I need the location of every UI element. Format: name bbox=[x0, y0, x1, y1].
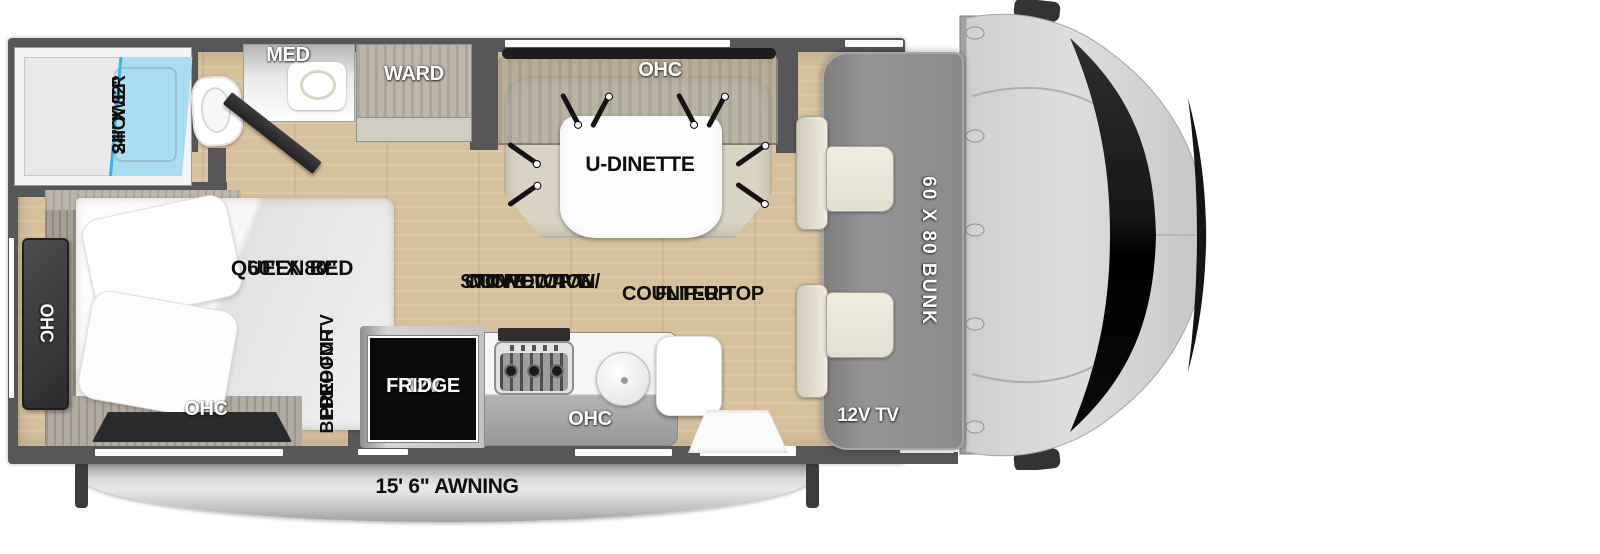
stove-backsplash bbox=[498, 328, 570, 341]
bed-name-text: QUEEN BED bbox=[231, 258, 353, 280]
bedroom-rear-ohc-label: OHC bbox=[168, 398, 244, 422]
window-top-dinette bbox=[505, 40, 730, 47]
window-bottom-middle bbox=[358, 449, 408, 455]
window-bottom-bedroom bbox=[95, 449, 283, 456]
cab-tv-label: 12V TV bbox=[824, 404, 912, 428]
driver-seat-back bbox=[796, 116, 828, 230]
wall-dinette-right bbox=[776, 38, 798, 153]
kitchen-sink bbox=[596, 352, 650, 406]
stove-burner bbox=[550, 364, 564, 378]
kitchen-ohc-label: OHC bbox=[558, 408, 622, 432]
stove-top bbox=[494, 341, 574, 395]
wall-cab-bottom bbox=[890, 452, 958, 464]
stove-label-line3: MICROWAVE bbox=[469, 272, 590, 293]
slide-topper-bar bbox=[502, 48, 776, 59]
joint-rivet bbox=[966, 421, 984, 433]
flip-up-counter-label: FLIP-UP COUNTER TOP bbox=[608, 272, 778, 318]
stove-knobs bbox=[510, 345, 562, 351]
fridge-label: 12V FRIDGE bbox=[368, 352, 478, 422]
stove-burner bbox=[504, 364, 518, 378]
dinette-ohc-label: OHC bbox=[630, 60, 690, 82]
passenger-seat-cushion bbox=[826, 292, 894, 358]
wardrobe-front bbox=[357, 117, 471, 141]
wall-wardrobe-right bbox=[470, 38, 498, 150]
stove-burner bbox=[527, 364, 541, 378]
joint-rivet bbox=[966, 130, 984, 142]
flip-label-line2: COUNTER TOP bbox=[622, 284, 764, 305]
passenger-seat-back bbox=[796, 284, 828, 398]
bedroom-tv-prep-label: PREP FOR BEDROOM TV bbox=[306, 294, 350, 454]
toilet-bowl bbox=[199, 86, 232, 134]
bathroom-sink bbox=[288, 62, 346, 110]
flip-up-counter bbox=[656, 336, 722, 416]
truck-cab bbox=[952, 0, 1212, 470]
awning-label: 15' 6" AWNING bbox=[78, 474, 816, 500]
window-bottom-kitchen bbox=[575, 449, 672, 456]
wardrobe-cabinet bbox=[356, 44, 472, 142]
shower-label-name: SHOWER bbox=[110, 75, 129, 154]
tv-prep-line2: BEDROOM TV bbox=[318, 315, 337, 434]
awning: 15' 6" AWNING bbox=[78, 462, 816, 522]
sink-drain bbox=[621, 377, 628, 384]
rv-floorplan-diagram: 15' 6" AWNING 24" X 32" SHOWER MED WARD bbox=[0, 0, 1600, 554]
window-top-right bbox=[845, 40, 903, 47]
cab-over-bunk bbox=[822, 52, 964, 450]
joint-rivet bbox=[966, 318, 984, 330]
bunk-label: 60 X 80 BUNK bbox=[917, 161, 939, 341]
u-dinette-label: U-DINETTE bbox=[565, 152, 715, 178]
stove-label: STOVE TOP W/ CONVECTION MICROWAVE bbox=[420, 250, 640, 316]
fridge-label-line2: FRIDGE bbox=[386, 376, 460, 397]
wardrobe-label: WARD bbox=[356, 62, 472, 88]
bedroom-side-ohc-label: OHC bbox=[11, 300, 81, 347]
joint-rivet bbox=[966, 224, 984, 236]
queen-bed-label: 60" X 80" QUEEN BED bbox=[212, 244, 372, 294]
driver-seat-cushion bbox=[826, 146, 894, 212]
med-label: MED bbox=[250, 44, 326, 68]
shower-label: 24" X 32" SHOWER bbox=[55, 50, 185, 180]
joint-rivet bbox=[966, 27, 984, 39]
bathroom-sink-basin bbox=[300, 70, 336, 100]
